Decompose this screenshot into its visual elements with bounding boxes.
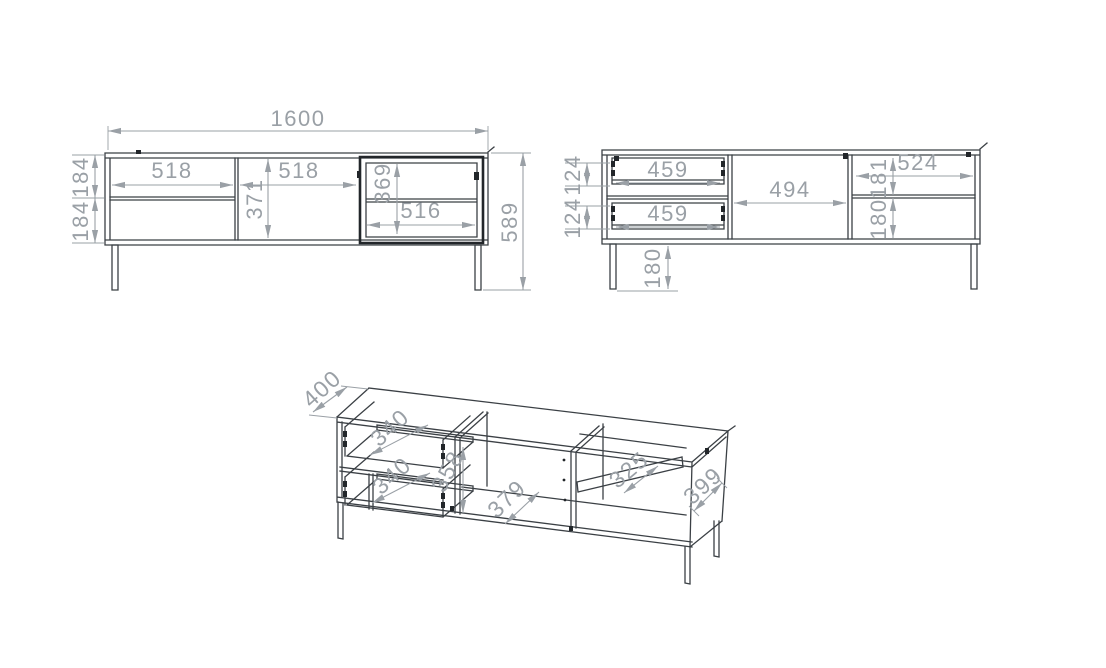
dim-label-drawer-front-top: 124	[560, 154, 585, 195]
front-legs	[112, 245, 481, 290]
isometric-view: 400 340 340 358 379 325 399	[297, 365, 735, 584]
dim-label-total-height: 589	[497, 201, 522, 242]
front-hinge-mark-mid	[357, 171, 361, 178]
dim-label-middle-door-height: 371	[242, 178, 267, 219]
dim-label-right-lower-height: 180	[866, 198, 891, 239]
dim-label-total-width: 1600	[271, 106, 326, 131]
dim-label-drawer-bottom-height: 184	[68, 200, 93, 241]
dim-label-bottom-drawer-depth: 340	[367, 452, 416, 500]
dim-label-glass-door-height: 369	[370, 162, 395, 203]
front-view: 1600 589 184 184 518 518 371 369 516	[68, 106, 531, 290]
interior-legs	[610, 244, 977, 289]
iso-partitions	[455, 412, 604, 528]
dim-label-side-depth: 399	[678, 462, 727, 510]
dim-label-top-drawer-depth: 340	[365, 404, 414, 452]
dim-label-drawer-width-top: 459	[647, 157, 688, 182]
dim-label-left-section-width: 518	[151, 158, 192, 183]
dim-label-glass-door-width: 516	[400, 198, 441, 223]
dim-label-shelf-depth: 325	[604, 446, 654, 493]
dim-label-right-upper-height: 181	[866, 157, 891, 198]
front-hinge-mark-top	[136, 150, 141, 154]
front-door-handle	[474, 172, 479, 180]
dim-label-right-compartment-width: 524	[897, 150, 938, 175]
dim-label-top-depth: 400	[297, 365, 346, 413]
technical-drawing-canvas: 1600 589 184 184 518 518 371 369 516	[0, 0, 1106, 668]
dim-label-middle-door-width: 518	[278, 158, 319, 183]
dim-label-bottom-depth: 379	[482, 474, 531, 522]
dim-label-middle-compartment-width: 494	[769, 177, 810, 202]
dim-label-drawer-front-bottom: 124	[560, 197, 585, 238]
dim-label-leg-height: 180	[640, 247, 665, 288]
dim-label-drawer-width-bottom: 459	[647, 201, 688, 226]
dim-label-drawer-top-height: 184	[68, 156, 93, 197]
interior-view: 124 124 459 459 494 524 181 180 180	[560, 143, 987, 291]
drawing-page: 1600 589 184 184 518 518 371 369 516	[0, 0, 1106, 668]
